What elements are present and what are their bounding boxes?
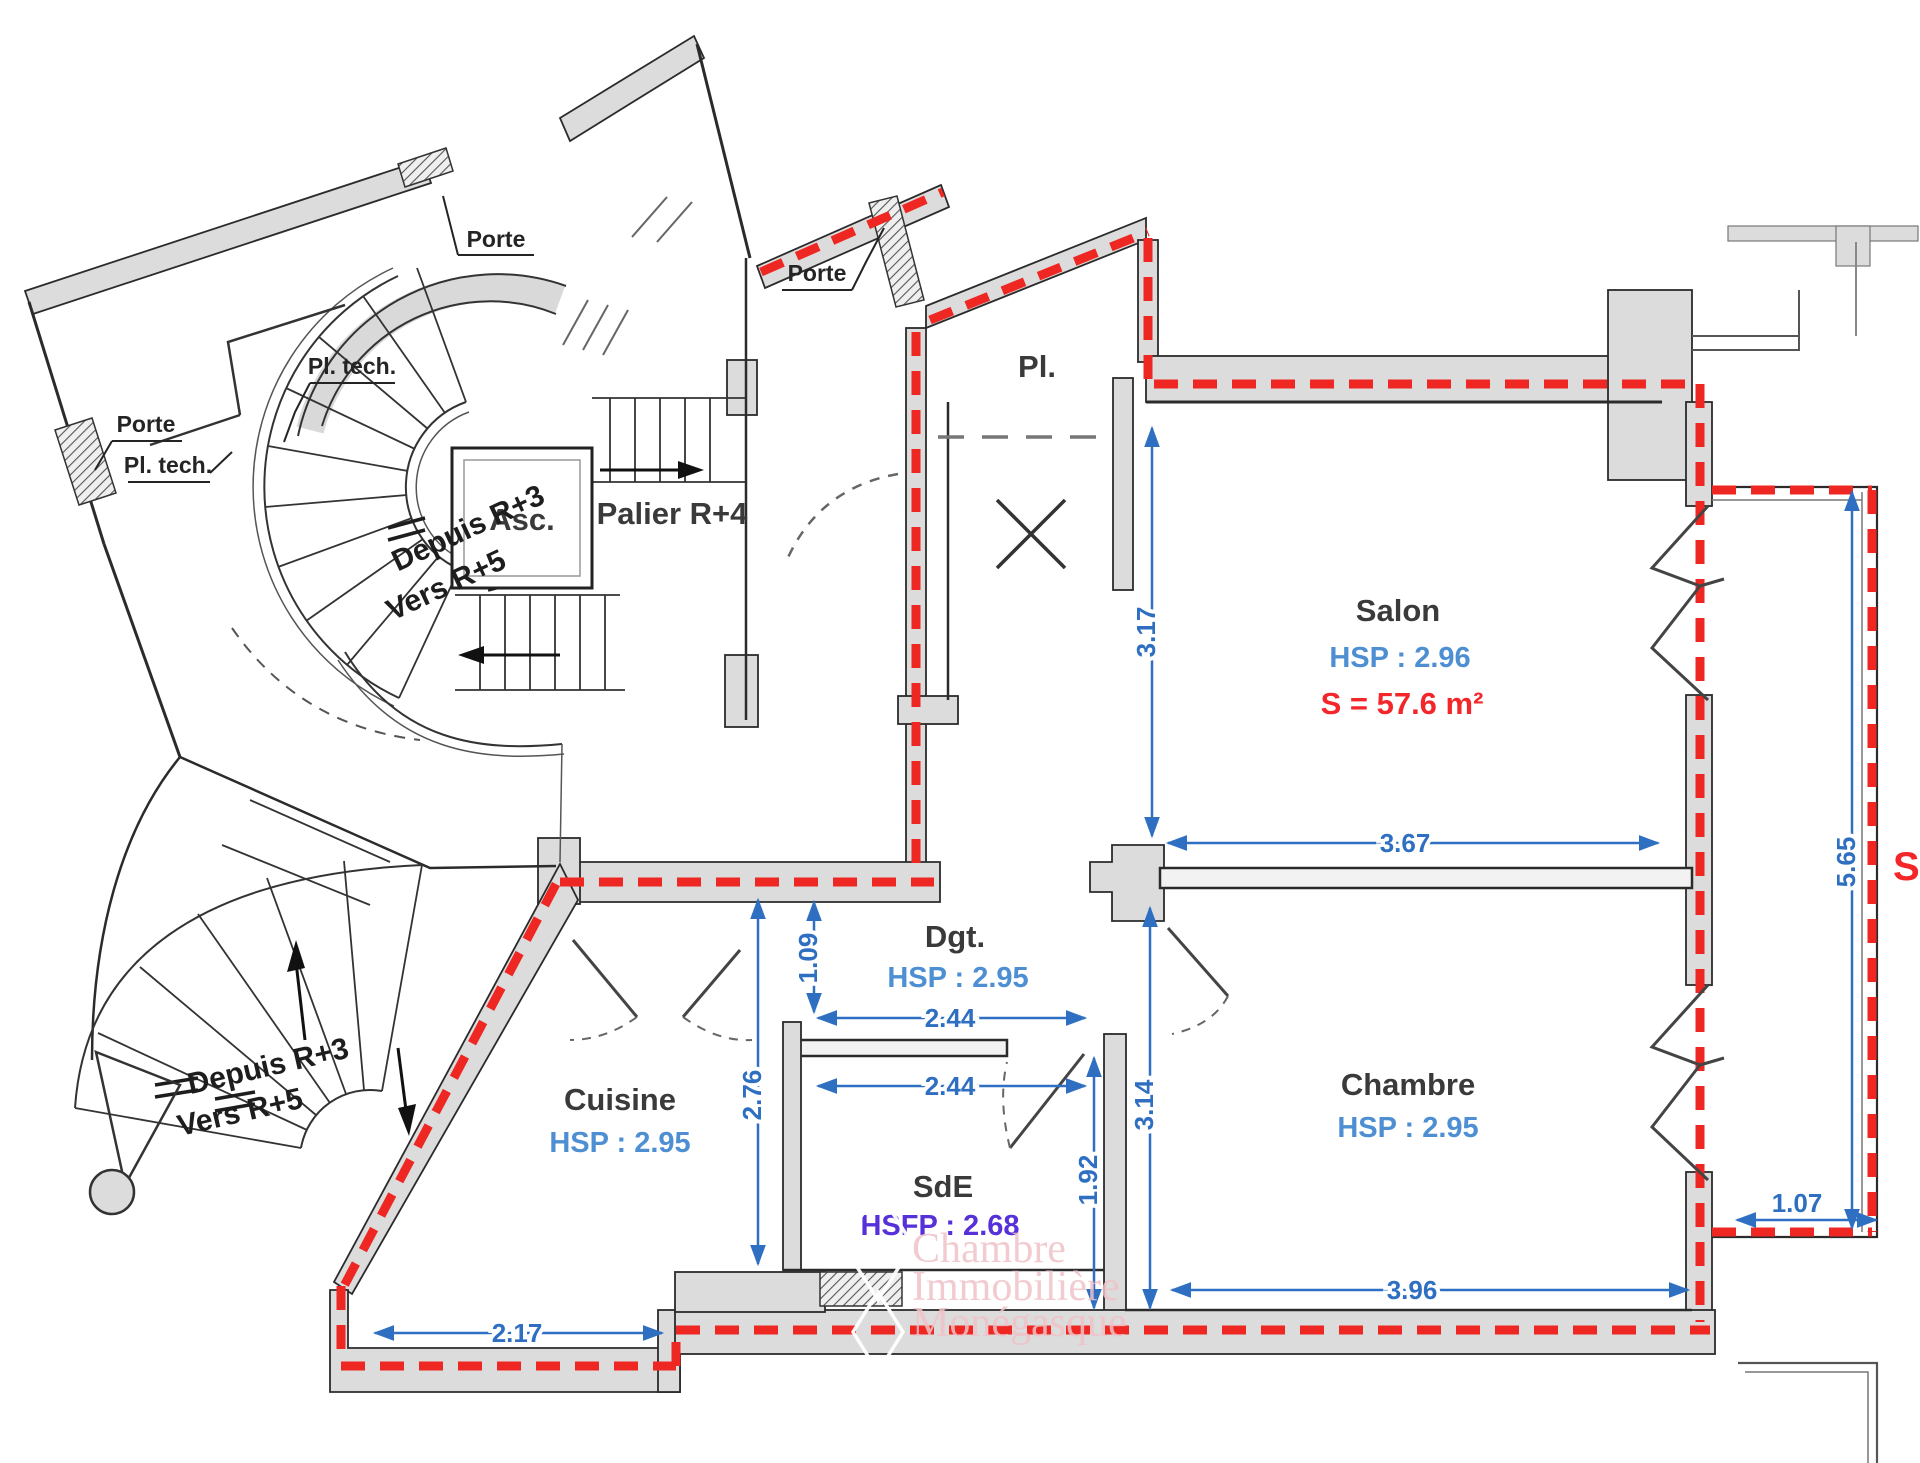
room-chambre-label: Chambre — [1341, 1067, 1475, 1102]
room-cuisine-label: Cuisine — [564, 1082, 676, 1117]
pillar-palier-bottom — [725, 655, 758, 727]
pl-tech-label-top: Pl. tech. — [308, 353, 396, 379]
dim-3-14: 3.14 — [1129, 1079, 1159, 1130]
window-hatch-sde-icon — [820, 1272, 902, 1306]
dim-1-09: 1.09 — [793, 933, 823, 984]
pillar-salon-chambre — [1090, 845, 1164, 921]
room-salon-label: Salon — [1356, 593, 1440, 628]
room-salon-height: HSP : 2.96 — [1329, 642, 1470, 674]
arrow-up-icon — [287, 940, 305, 972]
porte-label-entry: Porte — [788, 260, 847, 286]
dim-3-17: 3.17 — [1131, 607, 1161, 658]
dim-5-65: 5.65 — [1831, 837, 1861, 888]
room-pl-label: Pl. — [1018, 349, 1056, 384]
wall-stub-entry-right — [1113, 378, 1133, 590]
wall-sde-bottom-left — [675, 1272, 825, 1312]
wall-right-seg1 — [1686, 402, 1712, 506]
arrow-left-icon — [458, 646, 484, 664]
dim-2-76: 2.76 — [737, 1070, 767, 1121]
room-sde-label: SdE — [913, 1169, 973, 1204]
room-labels: Palier R+4 Asc. Pl. Salon HSP : 2.96 S =… — [489, 349, 1483, 1242]
wall-sde-top — [795, 1040, 1007, 1056]
dim-2-44b: 2.44 — [925, 1071, 976, 1101]
floor-plan-page: 3.17 3.67 1.09 2.44 2.44 2.76 3.14 1.92 … — [0, 0, 1920, 1463]
room-dgt-height: HSP : 2.95 — [887, 962, 1028, 994]
x-mark — [997, 500, 1065, 568]
dim-2-17: 2.17 — [492, 1318, 543, 1348]
watermark-line3: Monégasque — [912, 1300, 1127, 1346]
wall-top-right-edge — [1728, 226, 1918, 241]
pillar-entry-bottom — [898, 696, 958, 724]
arrow-right-icon — [678, 461, 704, 479]
door-hatch-left-icon — [55, 418, 116, 505]
room-chambre-height: HSP : 2.95 — [1337, 1112, 1478, 1144]
dim-1-92: 1.92 — [1073, 1155, 1103, 1206]
room-salon-area: S = 57.6 m² — [1321, 686, 1484, 721]
balcony-area-partial: S — [1893, 845, 1920, 889]
pl-tech-label-left: Pl. tech. — [124, 452, 212, 478]
dim-2-44a: 2.44 — [925, 1003, 976, 1033]
wall-cuisine-sde — [783, 1022, 801, 1270]
arrow-down-icon — [398, 1104, 416, 1136]
wall-salon-chambre — [1160, 868, 1692, 888]
lower-staircase — [75, 800, 422, 1214]
dim-1-07: 1.07 — [1772, 1188, 1823, 1218]
pillar-palier-top — [727, 360, 757, 415]
dim-3-96: 3.96 — [1387, 1275, 1438, 1305]
porte-label-left: Porte — [117, 411, 176, 437]
wall-top-right-block — [1836, 226, 1870, 266]
wall-top-band-2 — [560, 36, 704, 141]
porte-label-top: Porte — [467, 226, 526, 252]
room-dgt-label: Dgt. — [925, 919, 985, 954]
wall-pl-top-band — [926, 218, 1146, 328]
floor-plan-drawing: 3.17 3.67 1.09 2.44 2.44 2.76 3.14 1.92 … — [0, 0, 1920, 1463]
window-salon-icon — [1652, 506, 1724, 700]
dim-3-67: 3.67 — [1380, 828, 1431, 858]
room-palier-label: Palier R+4 — [597, 496, 749, 531]
window-chambre-icon — [1652, 985, 1724, 1180]
room-cuisine-height: HSP : 2.95 — [549, 1127, 690, 1159]
wall-salon-top — [1146, 356, 1662, 402]
